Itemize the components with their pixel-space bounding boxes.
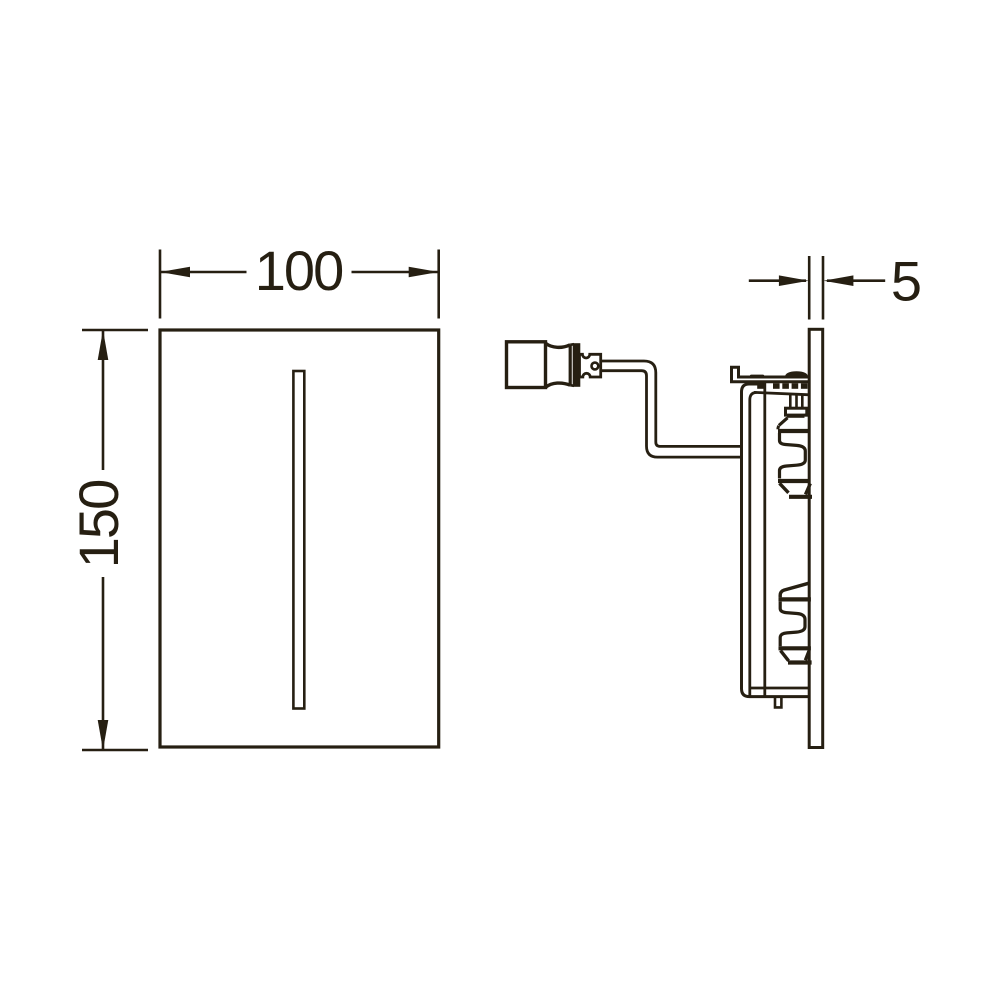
svg-text:5: 5: [891, 250, 922, 313]
svg-text:100: 100: [255, 239, 342, 302]
svg-text:150: 150: [67, 481, 130, 568]
